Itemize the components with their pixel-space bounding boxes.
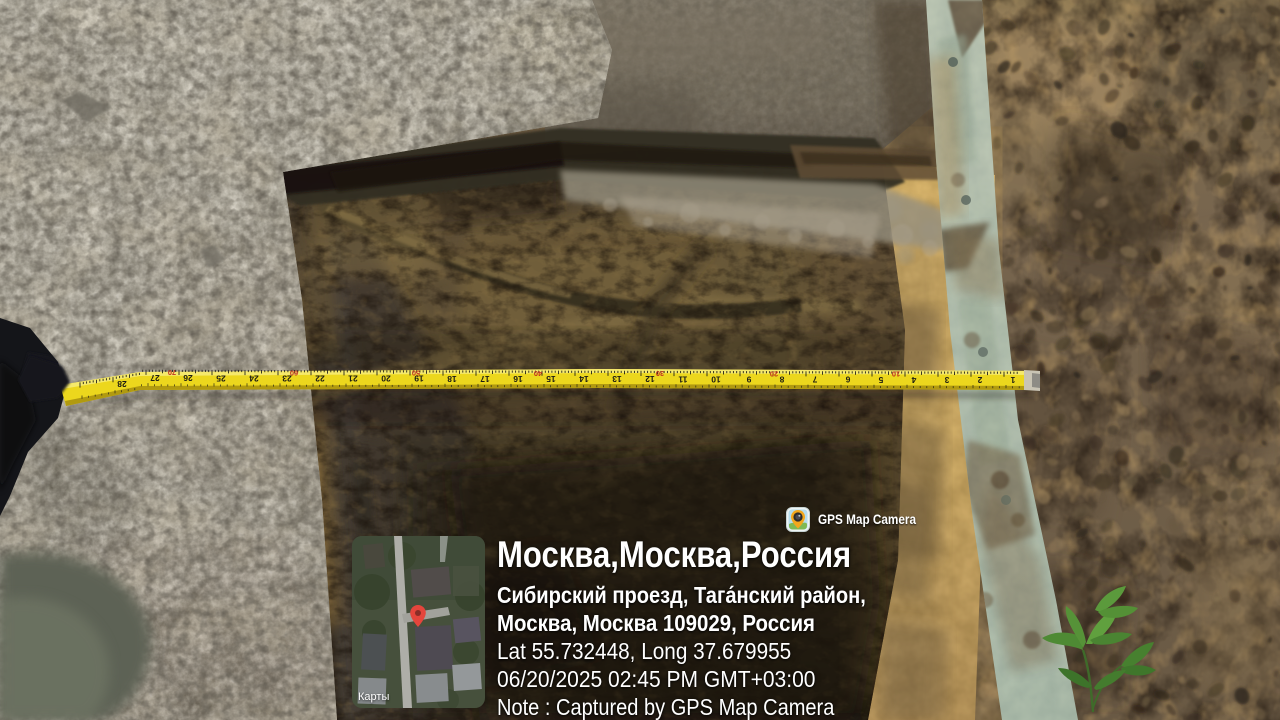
svg-text:26: 26 — [183, 373, 193, 383]
svg-text:13: 13 — [612, 374, 622, 384]
svg-text:17: 17 — [480, 374, 490, 384]
svg-text:50: 50 — [412, 369, 420, 378]
svg-text:6: 6 — [845, 375, 850, 385]
svg-text:25: 25 — [216, 373, 226, 383]
svg-text:15: 15 — [546, 374, 556, 384]
svg-text:21: 21 — [348, 374, 358, 384]
svg-text:20: 20 — [381, 374, 391, 384]
svg-text:10: 10 — [711, 374, 721, 384]
svg-text:27: 27 — [150, 373, 160, 383]
svg-text:24: 24 — [249, 373, 259, 383]
svg-text:12: 12 — [645, 374, 655, 384]
svg-text:7: 7 — [812, 375, 817, 385]
svg-text:22: 22 — [315, 374, 325, 384]
svg-text:16: 16 — [513, 374, 523, 384]
svg-text:40: 40 — [534, 369, 542, 378]
svg-text:9: 9 — [746, 375, 751, 385]
svg-text:20: 20 — [770, 369, 778, 378]
svg-text:30: 30 — [656, 369, 664, 378]
svg-text:3: 3 — [944, 375, 949, 385]
svg-text:8: 8 — [779, 375, 784, 385]
svg-text:4: 4 — [911, 375, 916, 385]
svg-text:11: 11 — [678, 374, 687, 384]
svg-text:70: 70 — [168, 368, 176, 377]
svg-text:14: 14 — [579, 374, 589, 384]
svg-text:10: 10 — [892, 370, 900, 379]
svg-text:18: 18 — [447, 374, 457, 384]
svg-text:2: 2 — [977, 375, 982, 385]
svg-text:28: 28 — [117, 379, 127, 389]
svg-text:5: 5 — [878, 375, 883, 385]
svg-text:1: 1 — [1010, 375, 1015, 385]
svg-text:60: 60 — [290, 368, 298, 377]
